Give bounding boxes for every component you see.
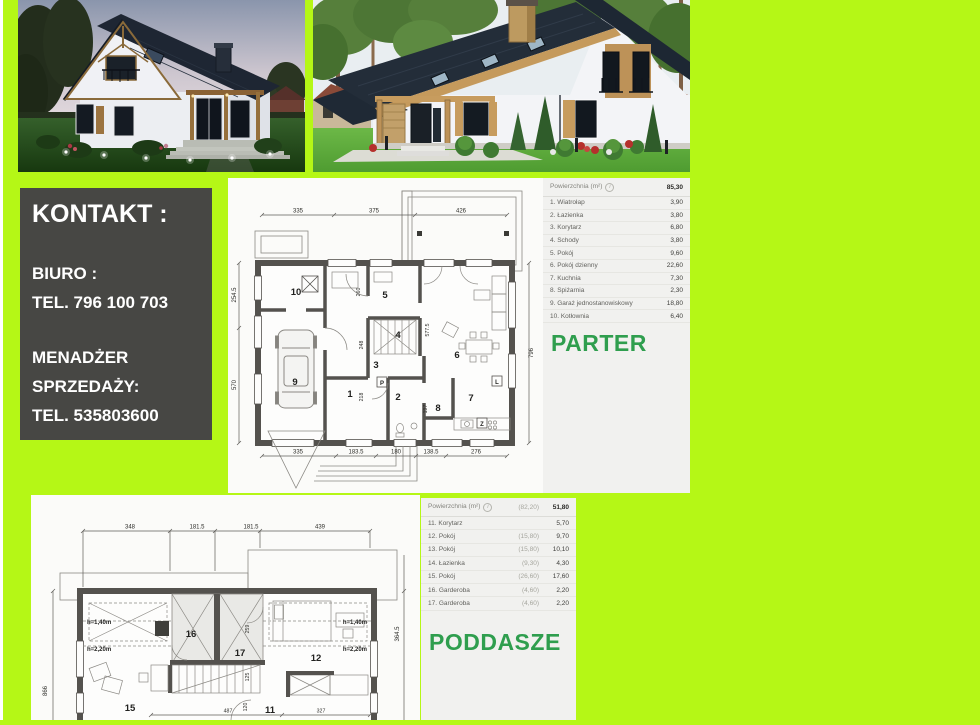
dim-label: 364.5 [395, 626, 401, 642]
row-label: 6. Pokój dzienny [550, 262, 653, 269]
row-label: 9. Garaż jednostanowiskowy [550, 300, 653, 307]
dim-label: 426 [456, 209, 467, 215]
terrace-outline [255, 191, 522, 271]
row-paren: (9,30) [513, 560, 539, 567]
dim-label: 335 [293, 450, 304, 456]
room-number: 17 [235, 648, 246, 659]
dim-label: 183.5 [348, 450, 364, 456]
height-label: h=2,20m [87, 647, 111, 653]
row-label: 16. Garderoba [428, 587, 513, 594]
dim-label: 197 [423, 405, 429, 414]
floor-title-poddasze: PODDASZE [421, 611, 576, 656]
contact-spacer [32, 229, 202, 255]
row-label: 2. Łazienka [550, 212, 653, 219]
row-value: 6,80 [653, 224, 683, 231]
height-label: h=1,40m [87, 620, 111, 626]
table-header-paren: (82,20) [513, 504, 539, 511]
room-number: 3 [373, 360, 378, 371]
dim-label: 181.5 [243, 525, 259, 531]
table-row: 3. Korytarz6,80 [543, 222, 690, 235]
row-label: 15. Pokój [428, 573, 513, 580]
table-row: 6. Pokój dzienny22,60 [543, 260, 690, 273]
row-value: 22,60 [653, 262, 683, 269]
table-row: 13. Pokój(15,80)10,10 [421, 544, 576, 557]
table-header: Powierzchnia (m²)i 85,30 [543, 178, 690, 197]
contact-manager-line1: MENADŻER [32, 348, 202, 368]
row-paren: (15,80) [513, 533, 539, 540]
row-paren: (4,60) [513, 587, 539, 594]
table-header-total: 51,80 [539, 504, 569, 511]
room-number: 5 [382, 290, 388, 301]
table-row: 16. Garderoba(4,60)2,20 [421, 584, 576, 597]
row-label: 4. Schody [550, 237, 653, 244]
row-paren: (4,60) [513, 600, 539, 607]
header-text: Powierzchnia (m²) [428, 503, 480, 510]
row-paren: (26,60) [513, 573, 539, 580]
table-row: 11. Korytarz5,70 [421, 517, 576, 530]
row-paren: (15,80) [513, 546, 539, 553]
header-text: Powierzchnia (m²) [550, 183, 602, 190]
row-value: 9,70 [539, 533, 569, 540]
contact-office-label: BIURO : [32, 264, 202, 284]
table-row: 15. Pokój(26,60)17,60 [421, 571, 576, 584]
room-number: 15 [125, 703, 136, 714]
room-number: 11 [265, 705, 276, 716]
floor-plan-parter-drawing: P L Z 335 375 426 335 183.5 180 138.5 27… [228, 178, 543, 493]
room-number: 10 [291, 287, 302, 298]
left-edge-strip [0, 0, 3, 720]
row-value: 5,70 [539, 520, 569, 527]
room-number: 4 [395, 330, 401, 341]
contact-manager-phone: TEL. 535803600 [32, 406, 202, 426]
room-number: 2 [395, 392, 400, 403]
dim-label: 138.5 [423, 450, 439, 456]
contact-title: KONTAKT : [32, 200, 202, 229]
dim-label: 259 [245, 625, 251, 634]
row-value: 2,30 [653, 287, 683, 294]
dim-label: 276 [471, 450, 482, 456]
chimney-symbol [155, 621, 169, 636]
dim-label: 570 [232, 379, 238, 390]
room-number: 6 [454, 350, 459, 361]
house-photo-day [313, 0, 690, 172]
dim-label: 125 [245, 673, 251, 682]
room-number: 8 [435, 403, 440, 414]
dim-label: 180 [391, 450, 402, 456]
row-value: 4,30 [539, 560, 569, 567]
table-header-label: Powierzchnia (m²)i [550, 183, 653, 192]
house-photo-dusk-art [18, 0, 305, 172]
row-label: 7. Kuchnia [550, 275, 653, 282]
floor-plan-poddasze: 348 181.5 181.5 439 866 364.5 259 125 12… [31, 495, 420, 720]
room-number: 12 [311, 653, 322, 664]
contact-box: KONTAKT : BIURO : TEL. 796 100 703 MENAD… [20, 188, 212, 440]
table-row: 1. Wiatrołap3,90 [543, 197, 690, 210]
dim-label: 796 [529, 347, 535, 358]
room-number: 9 [292, 377, 297, 388]
contact-manager-line2: SPRZEDAŻY: [32, 377, 202, 397]
row-label: 5. Pokój [550, 250, 653, 257]
table-row: 10. Kotłownia6,40 [543, 310, 690, 323]
dim-label: 181.5 [189, 525, 205, 531]
table-row: 7. Kuchnia7,30 [543, 273, 690, 286]
row-label: 10. Kotłownia [550, 313, 653, 320]
house-photo-dusk [18, 0, 305, 172]
table-row: 14. Łazienka(9,30)4,30 [421, 557, 576, 570]
floor-plan-poddasze-drawing: 348 181.5 181.5 439 866 364.5 259 125 12… [31, 495, 420, 720]
area-table-parter: Powierzchnia (m²)i 85,30 1. Wiatrołap3,9… [543, 178, 690, 493]
table-row: 2. Łazienka3,80 [543, 210, 690, 223]
row-value: 3,90 [653, 199, 683, 206]
table-header: Powierzchnia (m²)i (82,20) 51,80 [421, 498, 576, 517]
height-label: h=2,20m [343, 647, 367, 653]
marker-z: Z [480, 422, 484, 428]
row-label: 8. Spiżarnia [550, 287, 653, 294]
table-header-total: 85,30 [653, 184, 683, 191]
row-label: 1. Wiatrołap [550, 199, 653, 206]
floor-plan-parter: P L Z 335 375 426 335 183.5 180 138.5 27… [228, 178, 543, 493]
row-label: 17. Garderoba [428, 600, 513, 607]
dim-label: 254.5 [232, 287, 238, 303]
dim-label: 439 [315, 525, 326, 531]
row-value: 10,10 [539, 546, 569, 553]
row-value: 17,60 [539, 573, 569, 580]
room-number: 7 [468, 393, 473, 404]
row-value: 2,20 [539, 600, 569, 607]
area-table-poddasze: Powierzchnia (m²)i (82,20) 51,80 11. Kor… [421, 498, 576, 720]
table-row: 17. Garderoba(4,60)2,20 [421, 597, 576, 610]
row-value: 7,30 [653, 275, 683, 282]
row-value: 3,80 [653, 212, 683, 219]
dim-label: 866 [43, 685, 49, 696]
dim-label: 218 [359, 393, 365, 402]
table-row: 4. Schody3,80 [543, 235, 690, 248]
row-value: 6,40 [653, 313, 683, 320]
contact-office-phone: TEL. 796 100 703 [32, 293, 202, 313]
info-icon: i [483, 503, 492, 512]
info-icon: i [605, 183, 614, 192]
row-value: 2,20 [539, 587, 569, 594]
height-label: h=1,40m [343, 620, 367, 626]
house-photo-day-art [313, 0, 690, 172]
dim-label: 487 [224, 709, 233, 715]
room-number: 16 [186, 629, 197, 640]
dim-label: 577.5 [425, 323, 431, 336]
row-label: 11. Korytarz [428, 520, 513, 527]
dim-label: 335 [293, 209, 304, 215]
contact-spacer [32, 313, 202, 339]
table-header-label: Powierzchnia (m²)i [428, 503, 513, 512]
dim-label: 375 [369, 209, 380, 215]
table-row: 12. Pokój(15,80)9,70 [421, 530, 576, 543]
table-row: 8. Spiżarnia2,30 [543, 285, 690, 298]
dim-label: 348 [125, 525, 136, 531]
row-value: 3,80 [653, 237, 683, 244]
row-value: 18,80 [653, 300, 683, 307]
dim-label: 260 [356, 288, 362, 297]
row-value: 9,60 [653, 250, 683, 257]
row-label: 3. Korytarz [550, 224, 653, 231]
table-row: 5. Pokój9,60 [543, 247, 690, 260]
dim-label: 327 [317, 709, 326, 715]
floor-title-parter: PARTER [543, 323, 690, 357]
dim-label: 120 [243, 703, 249, 712]
marker-l: L [495, 380, 499, 386]
row-label: 13. Pokój [428, 546, 513, 553]
row-label: 12. Pokój [428, 533, 513, 540]
dim-label: 248 [359, 341, 365, 350]
room-number: 1 [347, 389, 353, 400]
table-row: 9. Garaż jednostanowiskowy18,80 [543, 298, 690, 311]
car [276, 330, 317, 408]
marker-p: P [380, 381, 384, 387]
row-label: 14. Łazienka [428, 560, 513, 567]
